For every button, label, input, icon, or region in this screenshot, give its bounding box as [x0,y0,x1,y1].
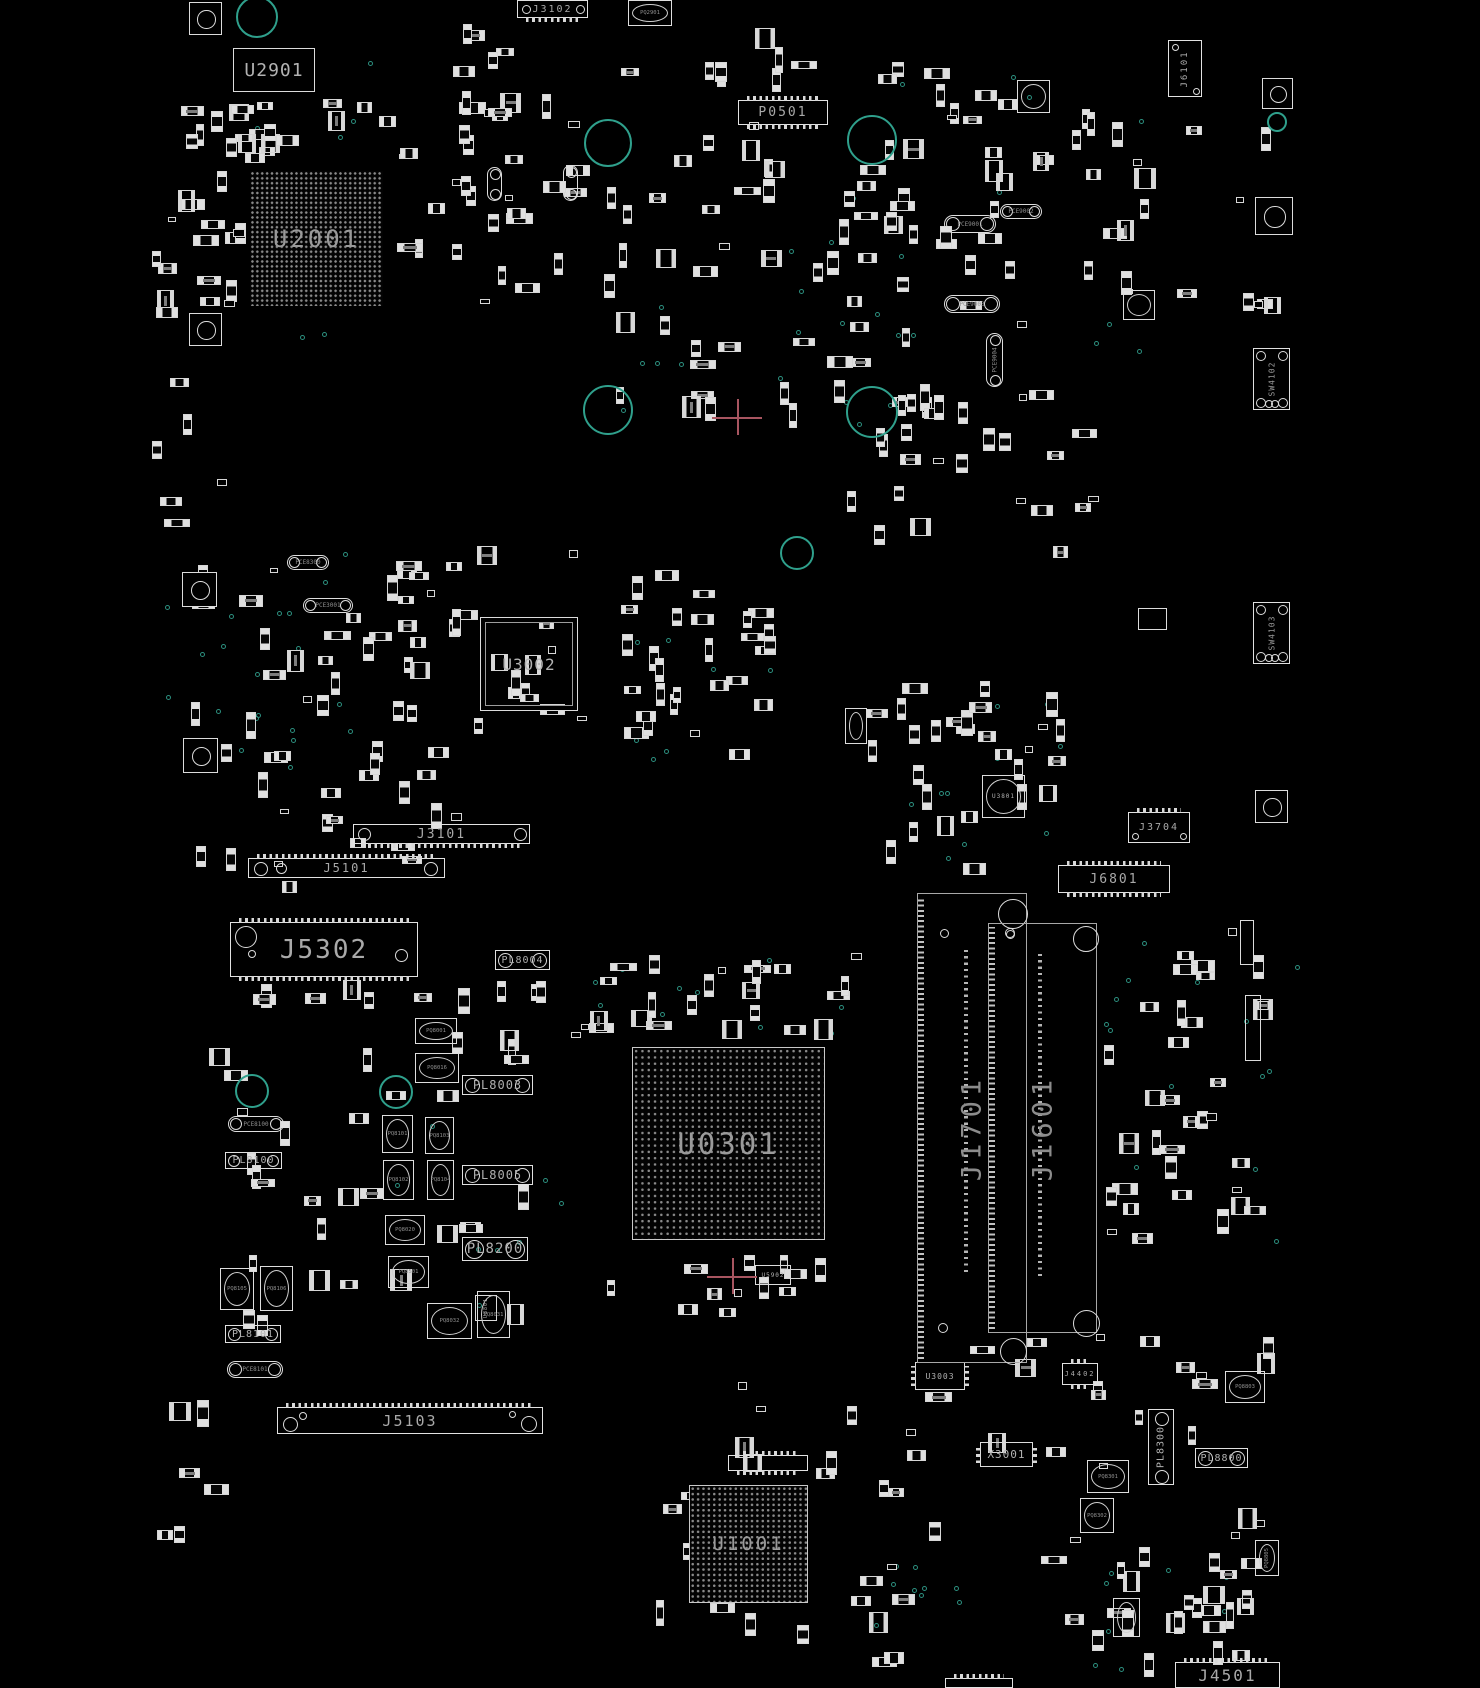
smd-part[interactable] [270,568,278,573]
smd-part[interactable] [963,116,983,125]
smd-part[interactable] [888,1488,903,1497]
smd-part[interactable] [357,102,372,114]
smd-part[interactable] [1238,1508,1258,1529]
smd-part[interactable] [655,570,679,581]
smd-part[interactable] [1072,429,1096,438]
smd-part[interactable] [963,863,986,874]
smd-part[interactable] [201,220,225,229]
smd-part[interactable] [507,208,526,219]
smd-part[interactable] [321,788,340,798]
smd-part[interactable] [738,1382,747,1389]
smd-part[interactable] [257,102,273,110]
capacitor-pce9002[interactable]: PCE9002 [1000,204,1042,219]
smd-part[interactable] [693,590,714,598]
connector-j5101[interactable]: J5101 [248,858,445,878]
connector-j3704[interactable]: J3704 [1128,812,1190,843]
smd-part[interactable] [1133,159,1142,167]
smd-part[interactable] [1165,1156,1177,1179]
connector-j6101[interactable]: J6101 [1168,40,1202,97]
smd-part[interactable] [600,977,618,985]
smd-part[interactable] [1243,293,1254,311]
smd-part[interactable] [152,251,161,266]
smd-part[interactable] [1096,1334,1105,1341]
smd-part[interactable] [1029,390,1054,400]
smd-part[interactable] [710,1603,735,1613]
smd-part[interactable] [648,992,656,1018]
smd-part[interactable] [744,1255,755,1271]
smd-part[interactable] [400,148,418,159]
smd-part[interactable] [174,1526,184,1542]
smd-part[interactable] [168,217,176,222]
smd-part[interactable] [340,1280,358,1288]
smd-part[interactable] [869,1612,888,1633]
smd-part[interactable] [196,846,206,868]
smd-part[interactable] [452,609,461,636]
smd-part[interactable] [1236,197,1244,202]
smd-part[interactable] [729,749,750,759]
smd-part[interactable] [844,191,855,206]
smd-part[interactable] [719,1308,736,1317]
smd-part[interactable] [346,613,361,623]
smd-part[interactable] [326,816,343,824]
smd-part[interactable] [775,47,783,73]
smd-part[interactable] [253,994,276,1005]
smd-part[interactable] [200,297,220,306]
smd-part[interactable] [239,595,263,607]
smd-part[interactable] [1134,168,1155,189]
smd-part[interactable] [965,255,976,274]
smd-part[interactable] [221,744,232,762]
fet-pq8104[interactable]: PQ8104 [427,1160,454,1200]
connector-j3101[interactable]: J3101 [353,824,530,844]
smd-part[interactable] [328,111,345,131]
smd-part[interactable] [1065,1614,1084,1625]
smd-part[interactable] [841,976,849,997]
capacitor-pce8100[interactable]: PCE8100 [228,1116,284,1132]
smd-part[interactable] [197,276,221,285]
smd-part[interactable] [656,1600,664,1626]
smd-part[interactable] [755,28,775,49]
smd-part[interactable] [907,1450,925,1461]
smd-part[interactable] [752,960,760,985]
smd-part[interactable] [690,360,716,369]
smd-part[interactable] [1119,1133,1140,1154]
smd-part[interactable] [414,993,432,1002]
smd-part[interactable] [956,454,968,473]
smd-part[interactable] [158,263,177,274]
smd-part[interactable] [427,590,436,597]
smd-part[interactable] [1168,1037,1189,1049]
smd-part[interactable] [1091,1390,1106,1401]
smd-part[interactable] [860,165,886,175]
smd-part[interactable] [619,243,627,268]
smd-part[interactable] [360,1188,383,1199]
smd-part[interactable] [1041,1556,1068,1564]
smd-part[interactable] [656,249,676,268]
smd-part[interactable] [682,396,701,417]
fet-pq8805[interactable]: PQ8805 [1255,1540,1279,1576]
capacitor-pce9004[interactable]: PCE9004 [986,333,1003,387]
smd-part[interactable] [621,68,639,76]
smd-part[interactable] [258,772,269,798]
capacitor-pce8101[interactable]: PCE8101 [227,1361,283,1378]
smd-part[interactable] [791,61,817,69]
smd-part[interactable] [191,702,200,726]
smd-part[interactable] [1244,1206,1267,1215]
smd-part[interactable] [1087,112,1095,135]
smd-part[interactable] [183,414,191,434]
smd-part[interactable] [1117,220,1133,241]
smd-part[interactable] [428,203,444,214]
smd-part[interactable] [1186,126,1202,135]
smd-part[interactable] [363,637,375,661]
chip-unlabeled[interactable] [1138,608,1167,630]
smd-part[interactable] [621,605,638,614]
chip-u3002[interactable]: U3002 [480,617,578,711]
smd-part[interactable] [834,380,845,403]
smd-part[interactable] [947,115,957,120]
smd-part[interactable] [1217,1209,1229,1234]
smd-part[interactable] [1184,1595,1194,1610]
capacitor-pce3001[interactable]: PCE3001 [303,598,353,613]
smd-part[interactable] [1177,1000,1186,1026]
smd-part[interactable] [1139,1547,1149,1567]
smd-part[interactable] [497,981,506,1001]
capacitor-pce8300[interactable]: PCE8300 [287,555,329,570]
smd-part[interactable] [152,441,162,459]
smd-part[interactable] [1261,127,1271,151]
smd-part[interactable] [1220,1570,1237,1579]
smd-part[interactable] [1135,1410,1143,1425]
smd-part[interactable] [975,90,998,100]
smd-part[interactable] [604,274,614,298]
chip-unlabeled[interactable] [845,708,867,744]
inductor-pl8200[interactable]: PL8200 [462,1237,528,1261]
inductor-pl8100[interactable]: PL8100 [225,1152,282,1169]
smd-part[interactable] [1072,130,1081,151]
connector-j5103[interactable]: J5103 [277,1407,543,1434]
smd-part[interactable] [1046,1447,1066,1457]
smd-part[interactable] [958,402,968,424]
smd-part[interactable] [488,52,498,69]
smd-part[interactable] [238,134,256,153]
capacitor-pce9001[interactable]: PCE9001 [944,215,996,233]
smd-part[interactable] [937,816,954,835]
smd-part[interactable] [839,219,849,245]
fet-pq8501[interactable]: PQ8501 [388,1256,429,1288]
smd-part[interactable] [789,403,798,427]
smd-part[interactable] [1264,297,1281,314]
smd-part[interactable] [463,24,472,45]
smd-part[interactable] [446,562,462,571]
switch-sw4103[interactable]: SW4103 [1253,602,1290,664]
smd-part[interactable] [693,266,718,276]
smd-part[interactable] [1117,1562,1125,1579]
smd-part[interactable] [734,187,761,195]
smd-part[interactable] [1084,261,1093,280]
inductor-pl8003[interactable]: PL8003 [462,1075,533,1095]
smd-part[interactable] [705,638,713,662]
chip-u3801[interactable]: U3801 [982,775,1025,818]
smd-part[interactable] [498,266,506,284]
inductor-pl8101[interactable]: PL8101 [225,1325,281,1343]
smd-part[interactable] [363,1048,373,1072]
smd-part[interactable] [734,1289,742,1297]
smd-part[interactable] [1025,746,1033,753]
smd-part[interactable] [826,1451,837,1475]
fet-pq8031[interactable]: PQ8031 [477,1291,510,1338]
smd-part[interactable] [1070,1537,1081,1542]
smd-part[interactable] [860,1576,883,1586]
smd-part[interactable] [901,424,912,442]
smd-part[interactable] [245,153,264,163]
smd-part[interactable] [705,397,716,421]
smd-part[interactable] [745,1613,756,1637]
smd-part[interactable] [1203,1621,1225,1633]
smd-part[interactable] [1140,1002,1158,1012]
smd-part[interactable] [687,995,697,1015]
smd-part[interactable] [186,134,198,149]
smd-part[interactable] [274,751,291,761]
smd-part[interactable] [1159,1145,1185,1153]
smd-part[interactable] [1144,1653,1154,1677]
smd-part[interactable] [780,382,789,405]
smd-part[interactable] [500,1030,520,1051]
fet-pq8001[interactable]: PQ8001 [415,1018,457,1044]
smd-part[interactable] [1112,122,1123,147]
smd-part[interactable] [211,111,223,132]
smd-part[interactable] [1123,1571,1140,1592]
smd-part[interactable] [1140,1336,1161,1347]
smd-part[interactable] [632,576,643,600]
smd-part[interactable] [874,525,885,545]
smd-part[interactable] [287,650,304,672]
smd-part[interactable] [505,155,523,165]
fet-pq8106[interactable]: PQ8106 [260,1266,293,1311]
smd-part[interactable] [393,701,404,722]
smd-part[interactable] [742,140,760,161]
bga-u0301[interactable]: U0301 [632,1047,825,1240]
smd-part[interactable] [933,458,944,464]
smd-part[interactable] [204,1484,229,1494]
chip-unlabeled[interactable] [1113,1598,1140,1637]
smd-part[interactable] [480,299,489,304]
smd-part[interactable] [793,338,815,346]
bga-u2001[interactable]: U2001 [250,171,383,306]
smd-part[interactable] [907,394,916,412]
smd-part[interactable] [474,718,483,733]
smd-part[interactable] [1174,1611,1184,1633]
smd-part[interactable] [1196,972,1215,981]
smd-part[interactable] [1086,169,1101,179]
smd-part[interactable] [884,1652,904,1663]
smd-part[interactable] [910,518,932,536]
smd-part[interactable] [1046,692,1057,718]
inductor-pl8800[interactable]: PL8800 [1195,1448,1248,1468]
smd-part[interactable] [892,1594,914,1605]
smd-part[interactable] [1183,1116,1200,1128]
smd-part[interactable] [797,1625,808,1644]
smd-part[interactable] [157,1530,173,1540]
smd-part[interactable] [707,1288,723,1300]
smd-part[interactable] [193,235,219,245]
smd-part[interactable] [452,244,462,261]
switch-sw4102[interactable]: SW4102 [1253,348,1290,410]
smd-part[interactable] [715,62,727,82]
smd-part[interactable] [866,709,888,718]
smd-part[interactable] [246,712,255,739]
smd-part[interactable] [851,953,862,960]
smd-part[interactable] [909,822,917,842]
smd-part[interactable] [1254,301,1264,308]
smd-part[interactable] [934,395,944,420]
smd-part[interactable] [999,433,1011,451]
smd-part[interactable] [343,980,362,1000]
smd-part[interactable] [898,395,906,416]
smd-part[interactable] [1005,261,1015,279]
smd-part[interactable] [784,1025,806,1036]
smd-part[interactable] [280,809,289,815]
smd-part[interactable] [276,135,299,145]
smd-part[interactable] [569,550,578,558]
smd-part[interactable] [282,881,297,892]
smd-part[interactable] [1177,951,1194,960]
smd-part[interactable] [624,686,641,694]
smd-part[interactable] [858,253,877,263]
smd-part[interactable] [897,277,908,292]
fet-pq8302[interactable]: PQ8302 [1080,1498,1114,1533]
smd-part[interactable] [913,765,924,785]
smd-part[interactable] [370,753,380,776]
smd-part[interactable] [156,307,178,318]
smd-part[interactable] [985,147,1003,158]
smd-part[interactable] [1253,955,1264,979]
smd-part[interactable] [417,770,436,780]
smd-part[interactable] [1123,1203,1139,1214]
smd-part[interactable] [969,702,992,713]
chip-x3001[interactable]: X3001 [980,1442,1033,1467]
smd-part[interactable] [722,1020,742,1039]
smd-part[interactable] [459,1224,484,1233]
smd-part[interactable] [181,106,204,115]
smd-part[interactable] [897,698,906,719]
smd-part[interactable] [1031,505,1053,516]
smd-part[interactable] [409,572,429,580]
smd-part[interactable] [623,205,632,224]
smd-part[interactable] [410,637,426,648]
chip-unlabeled[interactable] [1245,995,1261,1061]
smd-part[interactable] [1203,1586,1225,1604]
smd-part[interactable] [710,680,729,691]
smd-part[interactable] [763,179,775,204]
smd-part[interactable] [488,214,500,232]
smd-part[interactable] [922,784,932,810]
smd-part[interactable] [847,1406,858,1425]
smd-part[interactable] [233,229,245,237]
smd-part[interactable] [504,1055,530,1064]
smd-part[interactable] [931,720,941,741]
smd-part[interactable] [978,233,1002,244]
smd-part[interactable] [568,121,580,128]
smd-part[interactable] [399,781,410,804]
smd-part[interactable] [765,161,786,178]
smd-part[interactable] [903,139,924,159]
smd-part[interactable] [1075,503,1091,512]
smd-part[interactable] [909,725,920,744]
smd-part[interactable] [477,546,498,564]
smd-part[interactable] [879,1480,889,1497]
bga-u1001[interactable]: U1001 [689,1485,808,1603]
smd-part[interactable] [1256,1520,1266,1528]
smd-part[interactable] [636,711,657,722]
chip-unlabeled[interactable] [1017,80,1050,113]
smd-part[interactable] [704,974,714,997]
smd-part[interactable] [1019,394,1027,401]
smd-part[interactable] [996,173,1013,192]
smd-part[interactable] [854,212,878,220]
smd-part[interactable] [397,243,424,252]
smd-part[interactable] [437,1090,458,1101]
fet-pq8102[interactable]: PQ8102 [383,1160,414,1200]
smd-part[interactable] [779,1287,796,1297]
smd-part[interactable] [1192,1379,1218,1389]
smd-part[interactable] [961,710,973,737]
smd-part[interactable] [847,491,856,512]
smd-part[interactable] [774,964,791,974]
smd-part[interactable] [847,296,862,306]
smd-part[interactable] [607,1280,615,1297]
smd-part[interactable] [488,108,512,117]
smd-part[interactable] [886,212,897,231]
smd-part[interactable] [978,731,995,742]
smd-part[interactable] [902,683,928,694]
smd-part[interactable] [703,135,715,152]
smd-part[interactable] [1176,1362,1194,1374]
slot-j1601[interactable]: J1601 [988,923,1097,1333]
smd-part[interactable] [691,340,701,357]
smd-part[interactable] [590,1011,608,1031]
fet-pq8032[interactable]: PQ8032 [427,1303,472,1339]
smd-part[interactable] [998,99,1017,110]
smd-part[interactable] [1188,1426,1197,1445]
smd-part[interactable] [663,1504,682,1514]
smd-part[interactable] [850,358,871,367]
smd-part[interactable] [398,596,414,604]
smd-part[interactable] [197,1400,209,1426]
smd-part[interactable] [169,1402,191,1421]
smd-part[interactable] [260,628,269,650]
smd-part[interactable] [894,486,904,501]
connector-j3102[interactable]: J3102 [517,0,588,18]
chip-unlabeled[interactable] [1240,920,1254,965]
smd-part[interactable] [179,1468,200,1478]
smd-part[interactable] [705,62,713,80]
connector-p0501[interactable]: P0501 [738,100,828,125]
smd-part[interactable] [1231,1532,1240,1539]
smd-part[interactable] [857,181,875,191]
smd-part[interactable] [226,138,237,157]
smd-part[interactable] [577,716,587,721]
smd-part[interactable] [217,171,227,192]
smd-part[interactable] [231,105,254,113]
smd-part[interactable] [396,561,422,572]
smd-part[interactable] [554,253,563,274]
smd-part[interactable] [655,658,664,682]
smd-part[interactable] [719,243,730,249]
smd-part[interactable] [815,1258,826,1282]
smd-part[interactable] [961,811,979,823]
connector-j6801[interactable]: J6801 [1058,865,1170,893]
